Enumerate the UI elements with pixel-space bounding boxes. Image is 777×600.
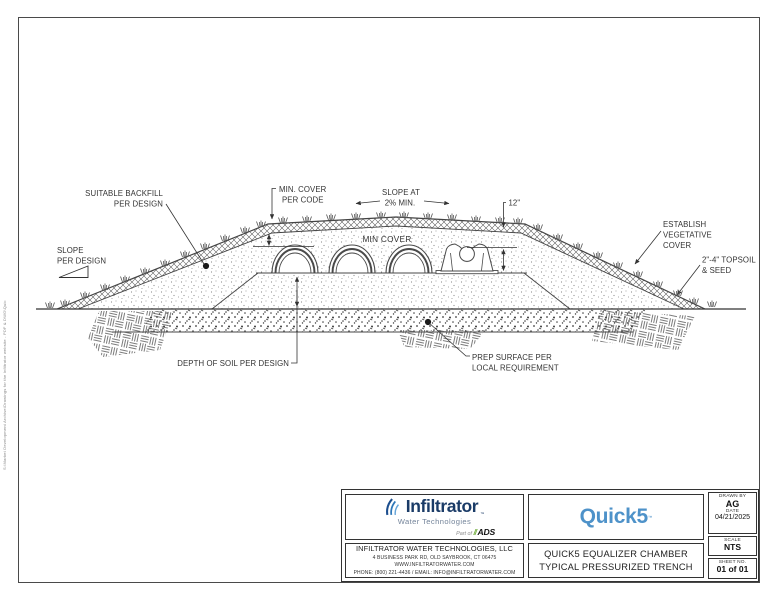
- label-suitable-backfill: SUITABLE BACKFILL: [85, 189, 163, 198]
- svg-text:LOCAL REQUIREMENT: LOCAL REQUIREMENT: [472, 364, 559, 373]
- company-contact: PHONE: (800) 221-4436 / EMAIL: INFO@INFI…: [354, 570, 516, 578]
- title-block: Infiltrator ™ Water Technologies Part of…: [341, 489, 759, 582]
- label-topsoil-seed: 2"-4" TOPSOIL: [702, 256, 756, 265]
- prep-surface-band: [112, 309, 646, 332]
- scale-box: SCALE NTS: [708, 536, 757, 556]
- quick5-logo: Quick5 ™: [528, 494, 704, 540]
- label-depth-of-soil: DEPTH OF SOIL PER DESIGN: [177, 359, 289, 368]
- label-min-cover: MIN COVER: [362, 235, 411, 244]
- brand-trademark: ™: [480, 512, 484, 516]
- brand-name: Infiltrator: [406, 498, 478, 516]
- company-name: INFILTRATOR WATER TECHNOLOGIES, LLC: [356, 544, 513, 553]
- part-of-text: Part of: [456, 531, 472, 537]
- label-establish-vegetative-cover: ESTABLISH: [663, 220, 706, 229]
- company-info: INFILTRATOR WATER TECHNOLOGIES, LLC 4 BU…: [345, 543, 524, 578]
- drawing-meta: DRAWN BY AG DATE 04/21/2025 SCALE NTS SH…: [708, 492, 757, 580]
- quick5-wordmark: Quick5: [580, 505, 648, 529]
- label-slope-per-design: SLOPE: [57, 246, 84, 255]
- svg-text:PER CODE: PER CODE: [282, 196, 324, 205]
- slope-symbol: [59, 266, 88, 278]
- drawing-title-line2: TYPICAL PRESSURIZED TRENCH: [539, 561, 692, 574]
- brand-subtitle: Water Technologies: [398, 517, 471, 526]
- svg-text:PER DESIGN: PER DESIGN: [57, 257, 106, 266]
- drawn-by-box: DRAWN BY AG DATE 04/21/2025: [708, 492, 757, 534]
- drawing-title: QUICK5 EQUALIZER CHAMBER TYPICAL PRESSUR…: [528, 543, 704, 578]
- svg-text:COVER: COVER: [663, 241, 691, 250]
- sheet-value: 01 of 01: [709, 565, 756, 575]
- ads-name: ADS: [477, 527, 495, 537]
- infiltrator-swoosh-icon: [385, 498, 404, 516]
- drawing-title-line1: QUICK5 EQUALIZER CHAMBER: [544, 548, 688, 561]
- svg-text:& SEED: & SEED: [702, 266, 731, 275]
- svg-text:2% MIN.: 2% MIN.: [385, 199, 416, 208]
- label-min-cover-code: MIN. COVER: [279, 185, 327, 194]
- label-slope-at: SLOPE AT: [382, 188, 420, 197]
- infiltrator-logo: Infiltrator ™ Water Technologies Part of…: [345, 494, 524, 540]
- company-address: 4 BUSINESS PARK RD, OLD SAYBROOK, CT 064…: [373, 555, 497, 563]
- date-value: 04/21/2025: [709, 514, 756, 522]
- quick5-trademark: ™: [648, 515, 653, 520]
- scale-value: NTS: [709, 543, 756, 553]
- ads-logo: Part of // ADS: [456, 527, 495, 537]
- chambers: [272, 245, 432, 273]
- label-prep-surface: PREP SURFACE PER: [472, 353, 552, 362]
- ads-slashes-icon: //: [474, 528, 476, 537]
- drawing-sheet: S:\Market Development Archive\Drawings f…: [0, 0, 777, 600]
- svg-text:PER DESIGN: PER DESIGN: [114, 200, 163, 209]
- label-12in: 12": [509, 199, 521, 208]
- svg-text:VEGETATIVE: VEGETATIVE: [663, 231, 712, 240]
- drawn-by-value: AG: [709, 499, 756, 509]
- sheet-box: SHEET NO. 01 of 01: [708, 558, 757, 579]
- company-website: WWW.INFILTRATORWATER.COM: [394, 562, 474, 570]
